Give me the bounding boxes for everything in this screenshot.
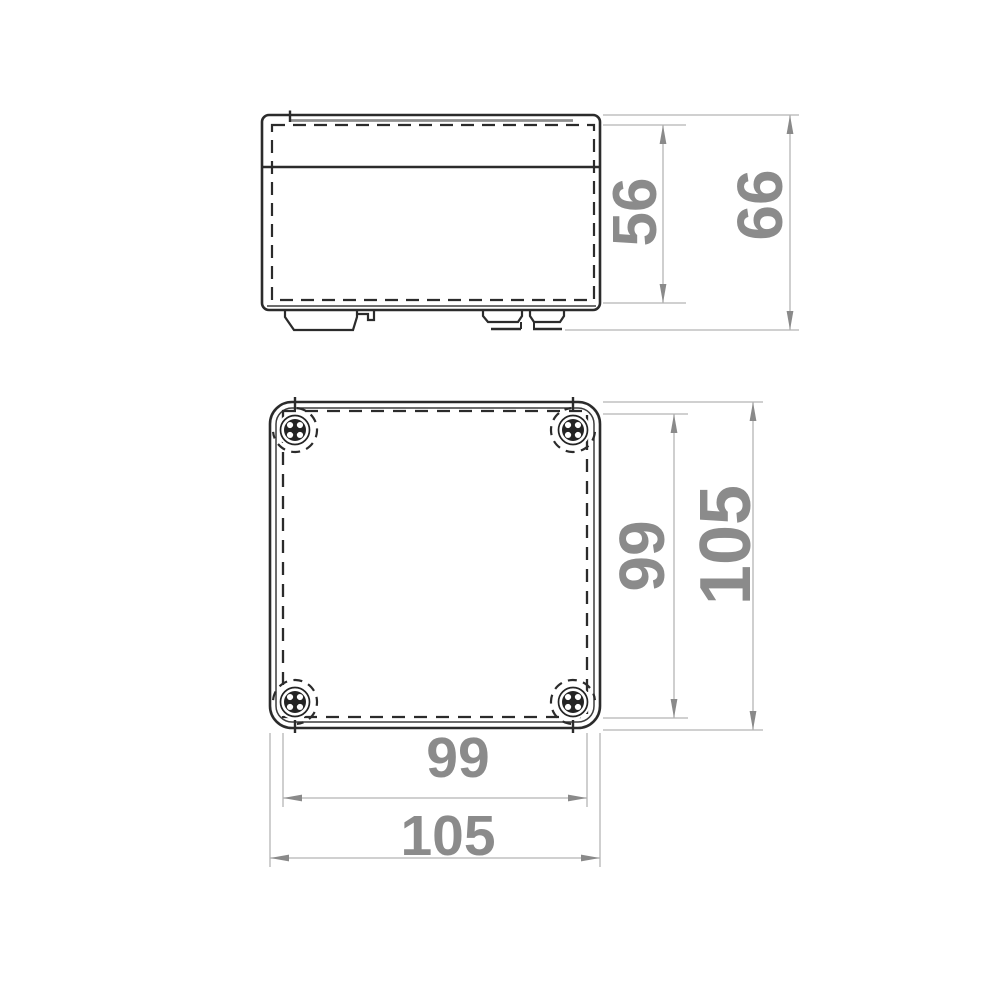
dimension-arrow <box>750 711 757 730</box>
mounting-tabs <box>285 311 564 330</box>
front-view-hidden-inset <box>283 411 587 717</box>
drawing-svg: 56 66 <box>0 0 1000 1000</box>
mounting-tab-right-2 <box>530 311 564 322</box>
dimension-arrow <box>750 402 757 421</box>
side-view-hidden-inset <box>272 125 594 300</box>
front-view-vertical-dimensions: 99 105 <box>603 402 766 730</box>
side-view-outline <box>262 115 600 310</box>
dimension-arrow <box>660 125 667 144</box>
front-view-horizontal-dimensions: 99 105 <box>270 726 600 868</box>
dimension-arrow <box>568 795 587 802</box>
mounting-tab-left <box>285 311 357 330</box>
dim-label-105-vertical: 105 <box>686 485 766 605</box>
mounting-tab-left-hook <box>357 311 374 320</box>
corner-screws <box>273 408 595 724</box>
dim-label-105-horizontal: 105 <box>400 804 495 868</box>
mounting-tab-right-1 <box>483 311 522 322</box>
front-view-outline <box>270 402 600 728</box>
side-view: 56 66 <box>262 111 799 331</box>
dimension-arrow <box>787 311 794 330</box>
dim-label-99-horizontal: 99 <box>426 726 489 790</box>
front-view: 99 105 99 105 <box>270 397 766 868</box>
dimension-arrow <box>787 115 794 134</box>
technical-drawing-canvas: 56 66 <box>0 0 1000 1000</box>
dimension-arrow <box>581 855 600 862</box>
dim-label-99-vertical: 99 <box>606 520 678 591</box>
dimension-arrow <box>671 414 678 433</box>
screw-top-right <box>551 408 595 452</box>
dimension-arrow <box>283 795 302 802</box>
dimension-arrow <box>671 699 678 718</box>
dimension-arrow <box>270 855 289 862</box>
dim-label-66: 66 <box>724 169 796 240</box>
front-view-inner-edge <box>276 408 594 722</box>
dim-label-56: 56 <box>601 178 670 247</box>
dimension-arrow <box>660 284 667 303</box>
